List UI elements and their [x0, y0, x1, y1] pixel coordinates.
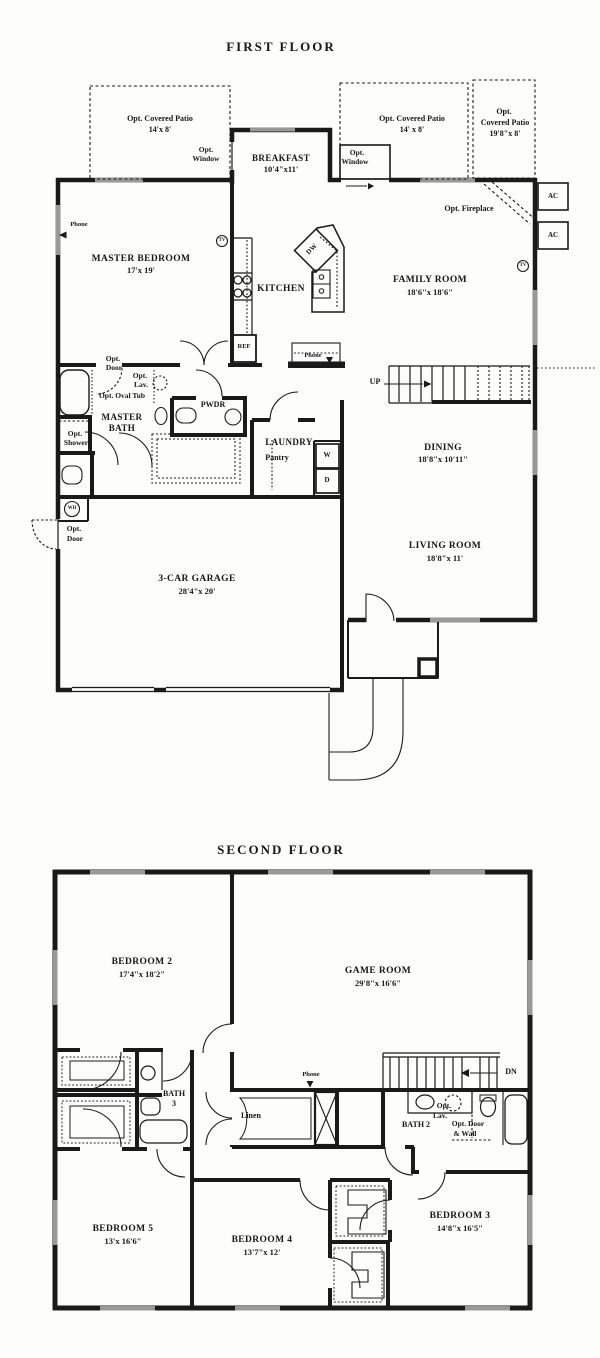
bedroom5-dims: 13'x 16'6": [104, 1237, 141, 1246]
family-room-dims: 18'6"x 18'6": [407, 288, 453, 297]
opt-fireplace-label: Opt. Fireplace: [444, 205, 493, 213]
floor-plan-drawing: [0, 0, 600, 1358]
entry-walkway: [329, 678, 403, 780]
bath3-label: BATH: [163, 1090, 185, 1098]
master-bedroom-dims: 17'x 19': [127, 266, 155, 275]
bath2-label: BATH 2: [402, 1121, 430, 1129]
tv-outlet-label: TV: [520, 264, 527, 269]
entry-column: [419, 659, 437, 677]
living-room-label: LIVING ROOM: [409, 542, 481, 552]
bath3-label2: 3: [172, 1100, 176, 1108]
phone-label: Phone: [302, 1072, 319, 1079]
kitchen-label: KITCHEN: [257, 285, 305, 295]
opt-door-label: Opt.: [106, 355, 120, 363]
second-floor-title: SECOND FLOOR: [217, 843, 345, 856]
bedroom2-label: BEDROOM 2: [112, 958, 173, 968]
pantry-label: Pantry: [265, 454, 289, 462]
master-bath-label: MASTER: [102, 413, 143, 422]
first-floor-door-swings: [85, 341, 394, 622]
opt-lav-label2: Lav.: [433, 1112, 447, 1120]
up-arrowhead-icon: [424, 381, 432, 388]
breakfast-label: BREAKFAST: [252, 154, 310, 163]
patio-right-label: Opt. Covered Patio: [379, 115, 445, 123]
living-room-dims: 18'8"x 11': [427, 554, 464, 563]
bedroom5-label: BEDROOM 5: [93, 1225, 154, 1235]
garage-label: 3-CAR GARAGE: [158, 575, 235, 585]
game-room-dims: 29'8"x 16'6": [355, 979, 401, 988]
bedroom3-dims: 14'8"x 16'5": [437, 1224, 483, 1233]
opt-shower-label: Opt.: [68, 430, 82, 438]
powder-room-label: PWDR: [201, 401, 225, 409]
opt-door-wall-label: Opt. Door: [452, 1120, 485, 1128]
stairs-down-label: DN: [505, 1068, 517, 1076]
patio-far-right-label: Opt.: [496, 108, 511, 116]
tv-outlet-label: TV: [219, 239, 226, 244]
ac-unit-label: AC: [548, 232, 558, 239]
bedroom2-dims: 17'4"x 18'2": [119, 970, 165, 979]
breakfast-dims: 10'4"x11': [264, 165, 298, 174]
water-heater-label: WH: [68, 507, 77, 512]
first-floor-secondary-walls: [58, 441, 438, 678]
garage-opt-door-label: Opt.: [67, 525, 81, 533]
dining-label: DINING: [424, 444, 462, 454]
game-room-label: GAME ROOM: [345, 967, 411, 977]
opt-oval-tub-label: Opt. Oval Tub: [99, 392, 145, 400]
patio-far-right-dims: 19'8"x 8': [490, 130, 521, 138]
dryer-label: D: [324, 477, 329, 484]
opt-window-right-label2: Window: [342, 158, 369, 166]
bedroom3-label: BEDROOM 3: [430, 1212, 491, 1222]
phone-label: Phone: [304, 353, 321, 360]
opt-window-right-label: Opt.: [350, 149, 364, 157]
stairs-up-label: UP: [370, 378, 381, 386]
laundry-label: LAUNDRY: [265, 438, 312, 447]
washer-label: W: [324, 452, 331, 459]
patio-left-dims: 14'x 8': [149, 126, 171, 134]
opt-lav-label: Opt.: [437, 1102, 451, 1110]
arrowheads-and-markers: [59, 183, 469, 1088]
dining-dims: 18'8"x 10'11": [418, 455, 468, 464]
patio-left-label: Opt. Covered Patio: [127, 115, 193, 123]
family-room-label: FAMILY ROOM: [393, 276, 467, 286]
garage-dims: 28'4"x 20': [178, 587, 215, 596]
opt-window-left-label2: Window: [193, 155, 220, 163]
opt-door-wall-label2: & Wall: [454, 1130, 477, 1138]
patio-right-dims: 14' x 8': [400, 126, 424, 134]
garage-opt-door-label2: Door: [67, 535, 83, 543]
master-bath-label2: BATH: [109, 424, 135, 433]
master-bedroom-label: MASTER BEDROOM: [92, 255, 191, 265]
first-floor-title: FIRST FLOOR: [226, 40, 336, 53]
phone-label: Phone: [70, 222, 87, 229]
opt-shower-label2: Shower: [64, 439, 88, 447]
refrigerator-label: REF: [238, 344, 251, 351]
opt-lav-label2: Lav.: [134, 381, 148, 389]
direction-arrows: [346, 186, 497, 1073]
opt-door-label2: Door: [106, 364, 122, 372]
opt-lav-label: Opt.: [133, 372, 147, 380]
ac-unit-label: AC: [548, 193, 558, 200]
patio-far-right-label2: Covered Patio: [481, 119, 530, 127]
window-arrowhead-icon: [368, 183, 374, 190]
stairs-down: [383, 1053, 500, 1090]
floor-plan-page: FIRST FLOOR Opt. Covered Patio 14'x 8' O…: [0, 0, 600, 1358]
bedroom4-label: BEDROOM 4: [232, 1236, 293, 1246]
linen-label: Linen: [241, 1112, 261, 1120]
opt-window-left-label: Opt.: [199, 146, 213, 154]
bedroom4-dims: 13'7"x 12': [243, 1248, 280, 1257]
phone-jack-marker-icon: [307, 1081, 314, 1088]
